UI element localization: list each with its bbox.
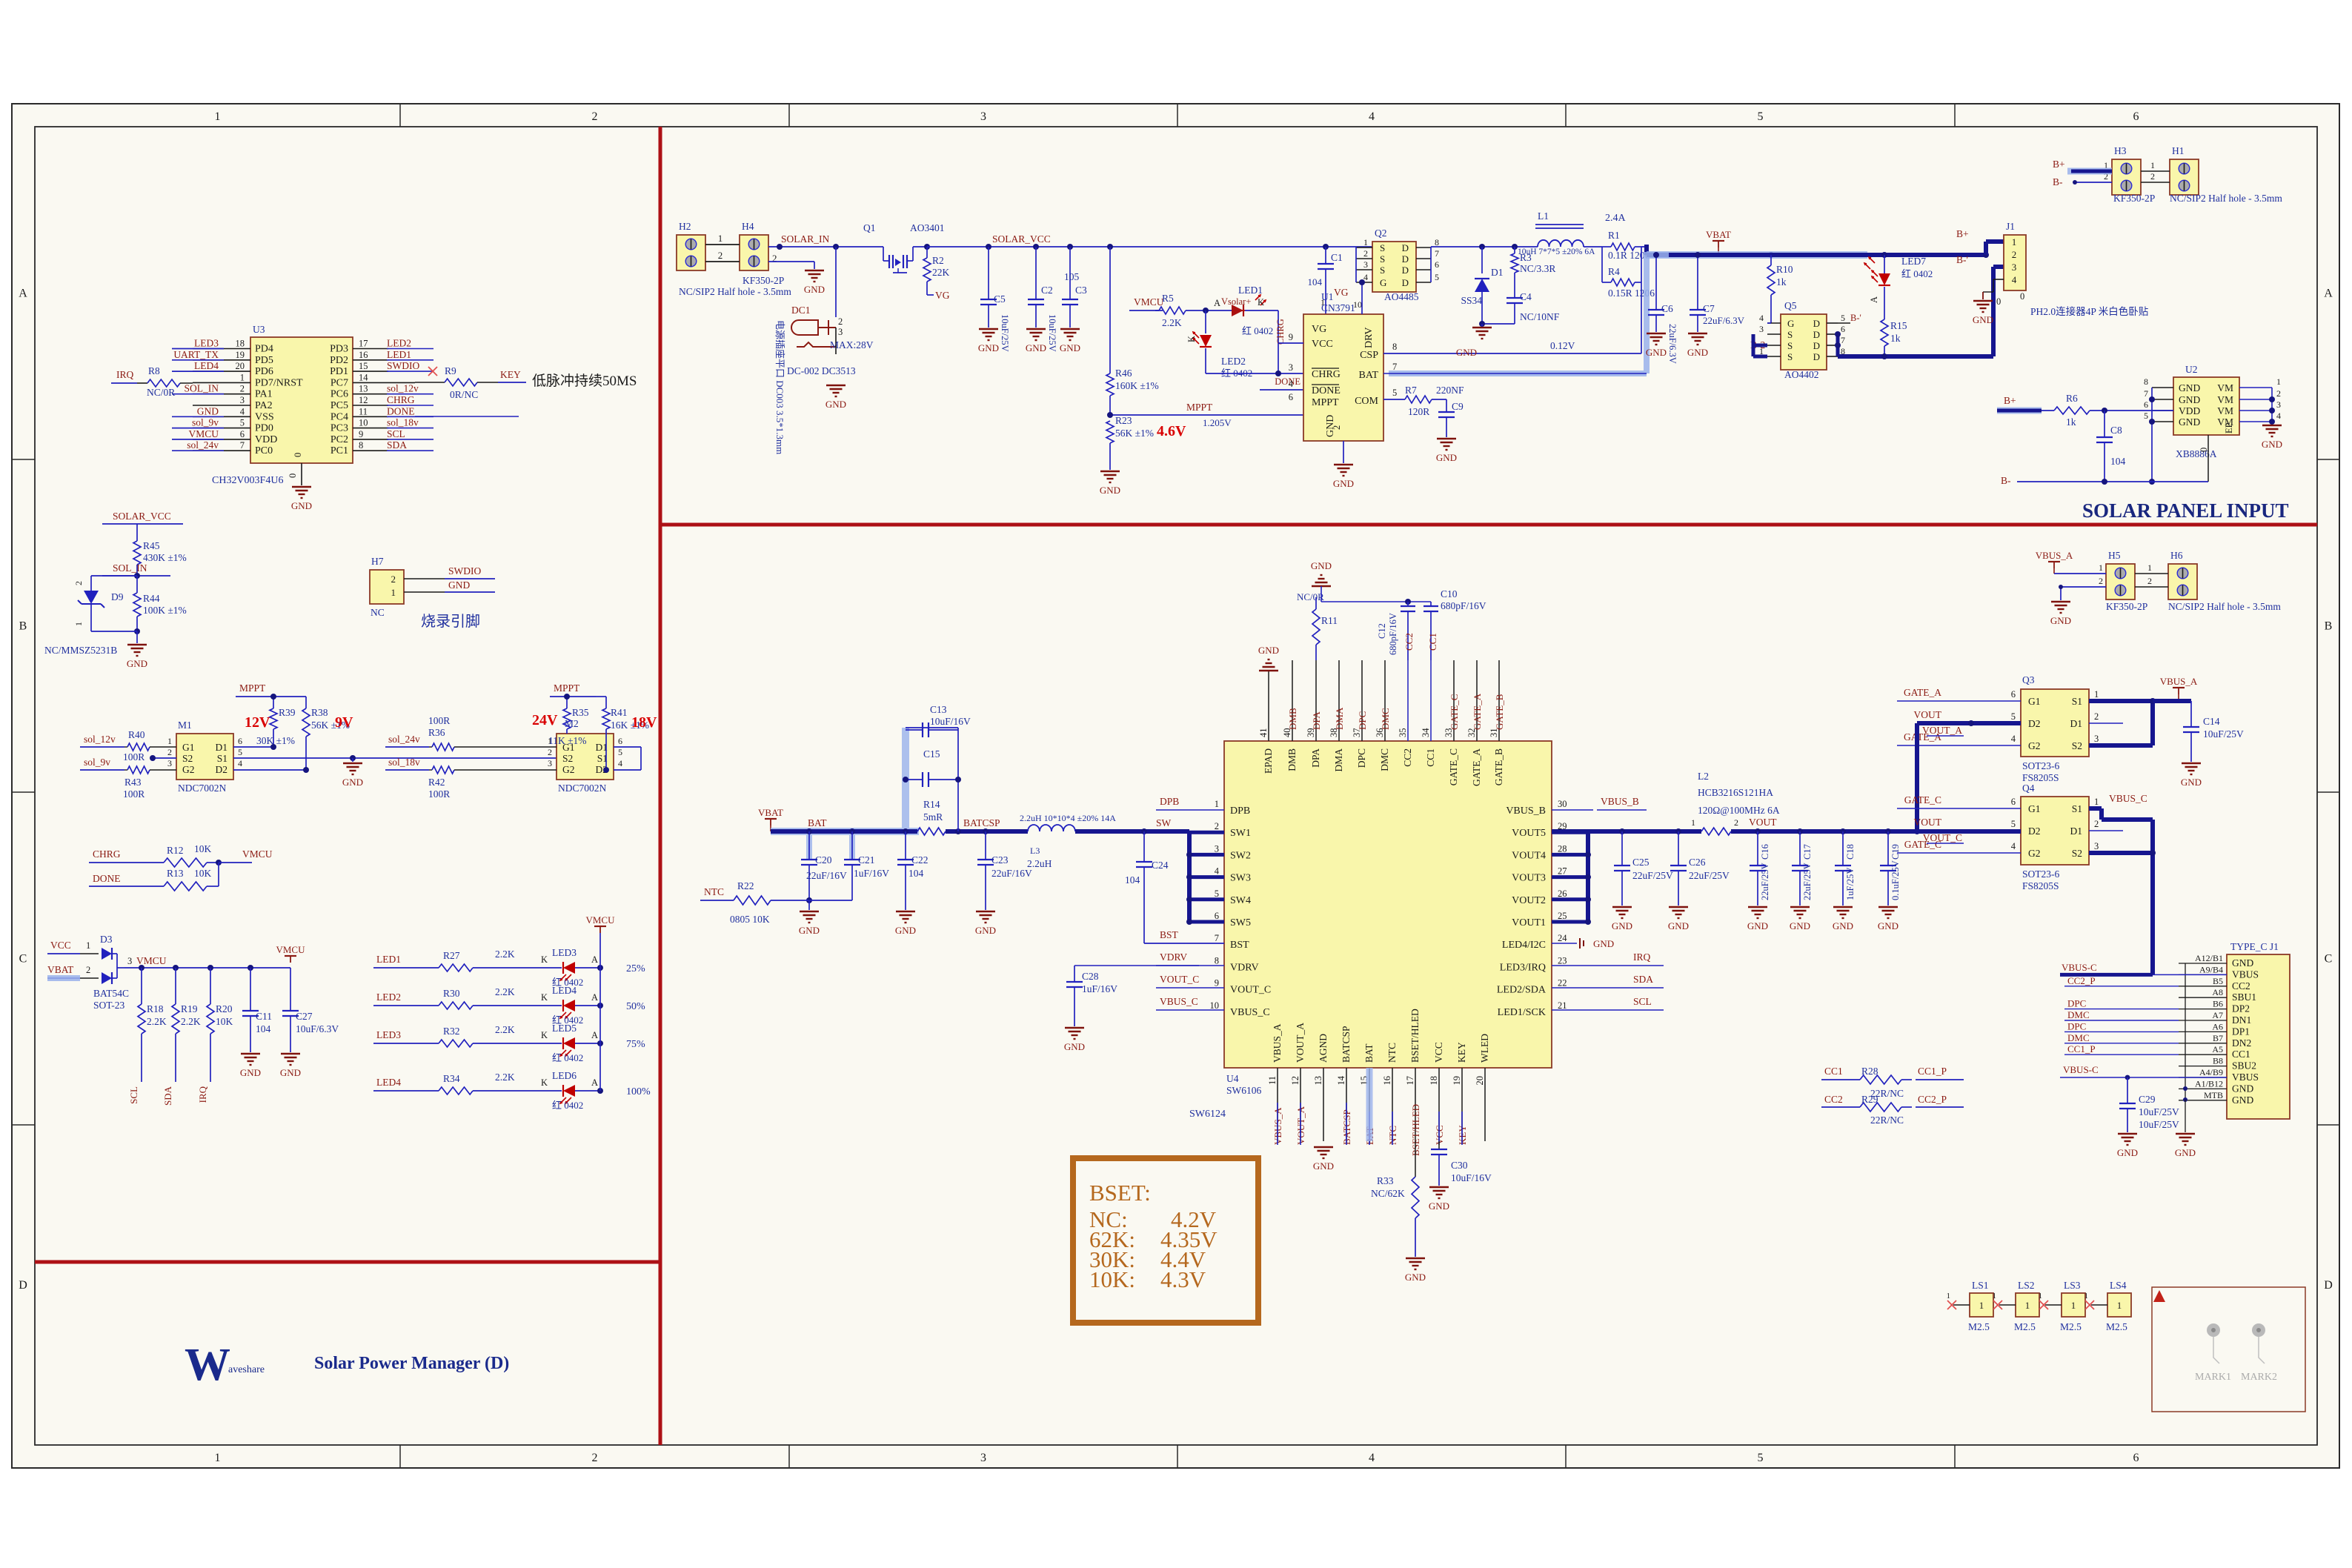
svg-text:GND: GND [1456,347,1477,358]
svg-text:5: 5 [1435,272,1439,282]
svg-text:4: 4 [2012,274,2017,285]
svg-text:6: 6 [1289,392,1293,402]
svg-text:SOLAR_VCC: SOLAR_VCC [113,511,171,522]
svg-text:1: 1 [2094,797,2099,807]
svg-text:CC2: CC2 [1402,748,1413,767]
svg-text:GND: GND [1833,920,1853,931]
svg-text:SCL: SCL [1633,996,1652,1007]
svg-text:23: 23 [1558,955,1567,966]
svg-text:VBUS_A: VBUS_A [1272,1023,1283,1063]
svg-text:0.12V: 0.12V [1550,340,1575,351]
svg-text:LED3: LED3 [194,338,219,349]
svg-text:1: 1 [2025,1300,2030,1311]
svg-text:GATE_C: GATE_C [1449,694,1460,730]
svg-text:12: 12 [1290,1076,1300,1086]
svg-text:R13: R13 [167,868,184,879]
svg-text:2: 2 [391,574,396,585]
svg-text:VMCU: VMCU [188,428,219,439]
svg-text:D: D [2324,1279,2333,1292]
svg-text:D1: D1 [2070,718,2083,729]
svg-text:0.1uF/25V: 0.1uF/25V [1890,860,1901,900]
svg-text:DN1: DN1 [2232,1014,2251,1026]
svg-text:24V: 24V [532,712,558,728]
svg-text:0805 10K: 0805 10K [730,914,770,925]
svg-text:0: 0 [2020,291,2024,302]
svg-text:WLED: WLED [1479,1034,1490,1063]
svg-text:NC/MMSZ5231B: NC/MMSZ5231B [44,645,117,656]
svg-text:S: S [1380,253,1385,265]
svg-text:CN3791: CN3791 [1321,302,1355,313]
svg-text:NC/SIP2 Half hole - 3.5mm: NC/SIP2 Half hole - 3.5mm [2170,193,2282,204]
svg-text:MPPT: MPPT [239,682,266,694]
svg-text:1.205V: 1.205V [1203,417,1232,428]
svg-text:GND: GND [280,1067,301,1078]
svg-text:6: 6 [2133,110,2139,123]
svg-text:2: 2 [2094,819,2099,829]
svg-text:100R: 100R [428,715,450,726]
svg-text:LS2: LS2 [2018,1280,2035,1291]
svg-text:FS8205S: FS8205S [2022,880,2059,891]
svg-text:GATE_A: GATE_A [1471,748,1482,786]
svg-text:VMCU: VMCU [585,914,615,926]
svg-text:VOUT_A: VOUT_A [1922,725,1962,736]
svg-text:SW3: SW3 [1230,873,1251,884]
svg-text:PD5: PD5 [255,355,273,366]
svg-text:1: 1 [86,940,90,951]
svg-text:GND: GND [1258,645,1279,656]
svg-text:12V: 12V [245,714,270,731]
svg-text:C6: C6 [1661,303,1673,314]
svg-text:C4: C4 [1520,291,1532,302]
svg-text:18V: 18V [631,714,657,731]
svg-text:NC/62K: NC/62K [1371,1188,1405,1199]
svg-text:18: 18 [236,339,245,349]
svg-text:MPPT: MPPT [1312,397,1339,408]
svg-text:J1: J1 [2006,221,2015,232]
svg-text:A: A [591,1030,598,1040]
svg-text:1: 1 [1979,1300,1984,1311]
svg-text:56K ±1%: 56K ±1% [1115,428,1154,439]
svg-text:GND: GND [799,925,820,936]
svg-text:CC1_P: CC1_P [2067,1043,2096,1054]
svg-text:22uF/25V: 22uF/25V [1802,863,1813,900]
svg-text:14: 14 [359,372,368,382]
svg-text:BST: BST [1160,929,1179,940]
svg-text:104: 104 [256,1023,271,1034]
svg-text:22uF/25V: 22uF/25V [1632,870,1673,881]
svg-text:D: D [1402,253,1409,265]
svg-text:GND: GND [1612,920,1632,931]
svg-text:2: 2 [1332,425,1342,430]
svg-text:DPB: DPB [1230,805,1250,817]
svg-text:R4: R4 [1608,266,1620,277]
svg-text:BAT: BAT [1359,370,1379,381]
svg-text:VOUT3: VOUT3 [1512,873,1546,884]
svg-text:34: 34 [1421,728,1431,737]
svg-text:NC/10NF: NC/10NF [1520,311,1560,322]
svg-text:BAT: BAT [1363,1043,1375,1063]
svg-text:22uF/6.3V: 22uF/6.3V [1703,315,1745,326]
svg-text:0: 0 [1996,296,2001,307]
svg-text:5: 5 [2144,411,2148,421]
svg-text:GND: GND [127,658,147,669]
svg-text:R7: R7 [1405,385,1417,396]
svg-text:GND: GND [2179,416,2200,428]
svg-text:SW1: SW1 [1230,828,1251,839]
svg-text:10: 10 [359,418,368,428]
svg-text:NC/SIP2 Half hole - 3.5mm: NC/SIP2 Half hole - 3.5mm [2168,601,2281,612]
svg-text:LED4: LED4 [194,360,219,371]
svg-text:R20: R20 [216,1003,233,1014]
svg-text:C29: C29 [2139,1094,2156,1105]
svg-text:AO3401: AO3401 [910,222,945,233]
svg-text:D: D [19,1279,27,1292]
svg-text:1k: 1k [2066,416,2076,428]
svg-text:C22: C22 [911,854,928,866]
svg-text:BATCSP: BATCSP [1341,1026,1352,1063]
svg-text:LED7: LED7 [1901,256,1926,267]
svg-text:MPPT: MPPT [554,682,580,694]
svg-text:VBUS_C: VBUS_C [2109,793,2147,804]
svg-text:B-': B-' [1956,254,1968,265]
svg-text:1: 1 [2117,1300,2122,1311]
svg-text:DP1: DP1 [2232,1026,2250,1037]
svg-text:LED2: LED2 [376,991,401,1003]
svg-text:M1: M1 [178,720,192,731]
svg-text:CC1_P: CC1_P [1918,1066,1947,1077]
svg-text:B+: B+ [1956,228,1969,239]
svg-text:G: G [1380,277,1386,288]
svg-text:5: 5 [1758,1452,1764,1464]
svg-text:SOLAR_IN: SOLAR_IN [781,233,830,245]
svg-text:DPA: DPA [1310,748,1321,768]
svg-text:0R/NC: 0R/NC [450,389,478,400]
svg-text:2: 2 [2094,711,2099,722]
svg-text:VCC: VCC [1433,1042,1444,1063]
svg-text:22uF/25V: 22uF/25V [1760,863,1770,900]
svg-text:GND: GND [1333,478,1354,489]
svg-text:A: A [591,954,598,965]
svg-text:6: 6 [1215,911,1219,921]
svg-text:1uF/25V: 1uF/25V [1845,868,1856,900]
svg-text:AO4485: AO4485 [1384,291,1419,302]
svg-text:C12: C12 [1377,623,1387,639]
svg-text:C27: C27 [296,1011,313,1022]
svg-text:GND: GND [1405,1272,1426,1283]
svg-text:D1: D1 [2070,825,2083,837]
svg-text:KF350-2P: KF350-2P [2106,601,2147,612]
svg-text:U3: U3 [253,324,265,335]
svg-text:R43: R43 [124,777,142,788]
svg-text:0: 0 [293,453,303,457]
svg-text:VOUT_A: VOUT_A [1295,1023,1306,1063]
svg-text:LED1: LED1 [376,954,401,965]
svg-text:GND: GND [197,405,219,416]
svg-text:GND: GND [1687,347,1708,358]
svg-text:BATCSP: BATCSP [963,817,1000,828]
svg-text:K: K [1186,336,1197,342]
svg-text:VBUS_C: VBUS_C [1160,996,1198,1007]
svg-text:G1: G1 [182,742,195,753]
svg-text:IRQ: IRQ [197,1086,208,1103]
svg-text:DRV: DRV [1363,328,1375,348]
svg-text:6: 6 [2133,1452,2139,1464]
svg-text:4: 4 [2011,841,2016,851]
svg-text:G: G [1787,318,1794,329]
svg-text:8: 8 [359,440,363,451]
svg-text:C24: C24 [1152,860,1169,871]
svg-text:PC5: PC5 [330,400,348,411]
svg-text:GND: GND [1313,1160,1334,1172]
svg-text:SW6124: SW6124 [1189,1109,1226,1120]
svg-text:DPC: DPC [2067,1020,2086,1032]
svg-text:COM: COM [1355,396,1378,407]
svg-text:4: 4 [1215,866,1220,877]
svg-text:低脉冲持续50MS: 低脉冲持续50MS [532,373,637,389]
svg-text:GND: GND [1747,920,1768,931]
svg-text:C10: C10 [1441,588,1458,599]
svg-text:aveshare: aveshare [228,1364,265,1375]
svg-text:LED3: LED3 [552,947,577,958]
svg-text:sol_12v: sol_12v [84,734,116,745]
svg-text:S2: S2 [2072,740,2082,751]
svg-text:GND: GND [1100,485,1120,496]
svg-text:Q3: Q3 [2022,674,2035,685]
svg-text:VBUS_B: VBUS_B [1506,805,1546,817]
svg-text:SW: SW [1156,817,1172,828]
svg-text:10: 10 [1353,299,1362,310]
svg-text:2: 2 [592,1452,598,1464]
svg-text:A9/B4: A9/B4 [2199,964,2223,974]
svg-text:1: 1 [1947,1292,1951,1300]
svg-text:S2: S2 [2072,848,2082,859]
svg-text:22R/NC: 22R/NC [1870,1114,1904,1126]
svg-text:C7: C7 [1703,303,1715,314]
svg-text:3: 3 [838,327,843,337]
svg-text:R5: R5 [1162,293,1174,304]
svg-text:9V: 9V [335,714,353,731]
svg-text:GND: GND [1973,314,1993,325]
svg-text:CC1: CC1 [2232,1049,2250,1060]
svg-text:10uF/25V: 10uF/25V [2203,728,2244,740]
svg-text:2: 2 [1363,248,1368,259]
svg-text:R14: R14 [923,799,940,810]
svg-text:VOUT_C: VOUT_C [1160,974,1199,985]
svg-text:A: A [2324,288,2333,300]
svg-text:680pF/16V: 680pF/16V [1388,613,1398,655]
svg-text:5: 5 [1758,110,1764,123]
svg-text:8: 8 [1435,237,1439,248]
svg-text:R2: R2 [932,255,944,266]
svg-text:41: 41 [1258,728,1269,738]
svg-text:B5: B5 [2213,976,2223,986]
svg-text:7: 7 [2144,388,2148,399]
svg-text:C25: C25 [1632,857,1650,868]
svg-text:22uF/25V: 22uF/25V [1689,870,1730,881]
svg-text:sol_9v: sol_9v [192,417,219,428]
svg-text:5: 5 [1841,313,1845,323]
svg-text:GND: GND [448,579,470,591]
svg-text:GND: GND [2181,777,2202,788]
svg-text:7: 7 [1215,933,1219,943]
svg-text:18: 18 [1429,1076,1439,1086]
svg-text:BAT: BAT [808,817,827,828]
svg-text:M2.5: M2.5 [2106,1321,2127,1332]
svg-text:K: K [541,954,548,965]
svg-text:B: B [19,620,27,633]
svg-text:MAX:28V: MAX:28V [830,339,874,351]
svg-text:VBAT: VBAT [47,964,74,975]
svg-text:M2.5: M2.5 [2060,1321,2082,1332]
svg-text:A: A [591,1077,598,1088]
svg-text:SDA: SDA [1633,974,1653,985]
svg-text:1: 1 [2094,689,2099,700]
svg-text:1: 1 [240,372,245,382]
svg-text:R42: R42 [428,777,445,788]
svg-text:D: D [1813,329,1820,340]
svg-text:VBAT: VBAT [1706,229,1731,240]
svg-text:105: 105 [1064,271,1080,282]
svg-text:16: 16 [359,350,368,360]
svg-text:H6: H6 [2170,550,2183,561]
svg-text:2: 2 [2147,576,2152,586]
svg-text:VG: VG [935,290,950,301]
svg-text:SW2: SW2 [1230,850,1251,861]
svg-text:3: 3 [127,956,132,966]
svg-text:1: 1 [1993,1292,1997,1300]
svg-text:3: 3 [980,110,986,123]
svg-text:6: 6 [1841,324,1845,334]
svg-text:PA2: PA2 [255,400,273,411]
svg-text:LED2/SDA: LED2/SDA [1497,985,1547,996]
svg-text:GATE_B: GATE_B [1494,694,1505,730]
svg-text:10uF/25V: 10uF/25V [1047,314,1057,352]
svg-text:CHRG: CHRG [1275,319,1286,345]
svg-text:VOUT_C: VOUT_C [1923,832,1962,843]
svg-text:sol_18v: sol_18v [387,417,419,428]
svg-text:B6: B6 [2213,999,2223,1009]
svg-text:GND: GND [1790,920,1810,931]
svg-text:R44: R44 [143,593,160,604]
svg-text:VM: VM [2217,405,2233,416]
svg-text:C20: C20 [815,854,832,866]
svg-text:R8: R8 [148,365,160,376]
svg-text:S: S [1380,242,1385,253]
svg-text:烧录引脚: 烧录引脚 [421,613,480,630]
svg-text:AGND: AGND [1318,1034,1329,1063]
svg-text:A: A [1869,296,1879,303]
svg-text:VDD: VDD [2179,405,2200,416]
svg-text:2: 2 [1215,821,1219,831]
svg-text:6: 6 [618,736,622,746]
svg-text:19: 19 [1452,1076,1462,1086]
svg-text:27: 27 [1558,866,1567,877]
svg-text:2: 2 [718,250,723,261]
svg-text:H7: H7 [371,556,384,567]
svg-text:VM: VM [2217,382,2233,393]
svg-text:11: 11 [1267,1076,1278,1085]
svg-text:20: 20 [236,361,245,371]
svg-text:K: K [541,1030,548,1040]
svg-text:5: 5 [238,747,242,757]
svg-text:2: 2 [548,747,552,757]
svg-text:2: 2 [2276,388,2281,399]
svg-text:PC2: PC2 [330,434,348,445]
svg-text:S1: S1 [2072,803,2082,814]
svg-text:VBUS_A: VBUS_A [2036,550,2073,561]
svg-text:NTC: NTC [704,886,724,897]
svg-text:DPA: DPA [1311,711,1322,730]
svg-text:Solar Power Manager (D): Solar Power Manager (D) [314,1354,509,1373]
svg-text:1: 1 [167,736,172,746]
svg-text:GND: GND [342,777,363,788]
svg-text:DN2: DN2 [2232,1037,2251,1049]
svg-text:GND: GND [291,500,312,511]
svg-text:680pF/16V: 680pF/16V [1441,600,1486,611]
svg-text:10K: 10K [216,1016,233,1027]
svg-text:R45: R45 [143,540,160,551]
svg-text:NC/0R: NC/0R [147,387,175,398]
svg-text:LS1: LS1 [1972,1280,1989,1291]
svg-text:R36: R36 [428,727,445,738]
svg-text:R18: R18 [147,1003,164,1014]
svg-text:24: 24 [1558,933,1567,943]
svg-text:C21: C21 [858,854,875,866]
svg-text:1: 1 [2084,1292,2089,1300]
svg-text:C1: C1 [1331,252,1343,263]
svg-text:红 0402: 红 0402 [1242,325,1273,336]
svg-text:R6: R6 [2066,393,2078,404]
svg-text:L3: L3 [1030,846,1040,856]
svg-text:GND: GND [2175,1147,2196,1158]
svg-text:10uF/25V: 10uF/25V [1000,314,1010,352]
svg-text:S: S [1380,265,1385,276]
svg-text:B8: B8 [2213,1056,2223,1066]
svg-text:GND: GND [2179,394,2200,405]
svg-text:NDC7002N: NDC7002N [178,783,227,794]
svg-text:VOUT5: VOUT5 [1512,828,1546,839]
svg-text:SOT23-6: SOT23-6 [2022,760,2059,771]
svg-text:VOUT: VOUT [1914,817,1942,828]
svg-text:HCB3216S121HA: HCB3216S121HA [1698,787,1773,798]
svg-text:1: 1 [215,1452,221,1464]
svg-text:sol_9v: sol_9v [84,757,110,768]
svg-text:GND: GND [2179,382,2200,393]
svg-text:PC7: PC7 [330,377,348,388]
svg-text:5: 5 [1392,388,1397,398]
svg-text:D9: D9 [111,591,124,602]
svg-text:8: 8 [2144,376,2148,387]
svg-text:DPC: DPC [2067,998,2086,1009]
svg-text:C3: C3 [1075,285,1087,296]
svg-text:VBUS-C: VBUS-C [2062,962,2097,973]
svg-text:VMCU: VMCU [242,848,273,860]
svg-text:PC0: PC0 [255,445,273,456]
svg-text:L2: L2 [1698,771,1709,782]
svg-text:1: 1 [2276,376,2281,387]
svg-text:CSP: CSP [1360,350,1378,361]
svg-text:R28: R28 [1861,1066,1878,1077]
svg-text:Q4: Q4 [2022,783,2035,794]
svg-text:S: S [1787,340,1793,351]
svg-text:LED5: LED5 [552,1023,577,1034]
svg-text:DMA: DMA [1334,707,1345,730]
svg-text:GND: GND [1668,920,1689,931]
svg-text:0: 0 [288,474,298,478]
svg-text:10uF/25V: 10uF/25V [2139,1119,2179,1130]
svg-text:LS3: LS3 [2064,1280,2081,1291]
svg-text:C: C [19,953,27,966]
